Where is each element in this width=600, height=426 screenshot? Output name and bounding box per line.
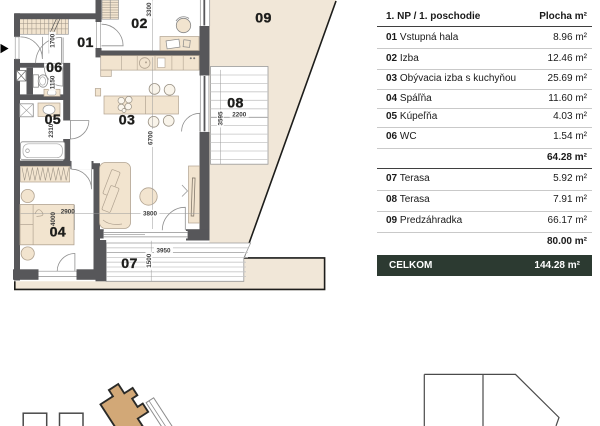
svg-text:3300: 3300 — [146, 2, 153, 17]
svg-text:04: 04 — [50, 224, 66, 240]
svg-text:6700: 6700 — [148, 131, 155, 146]
svg-text:3950: 3950 — [156, 247, 171, 254]
svg-text:3595: 3595 — [218, 111, 225, 126]
svg-text:1700: 1700 — [50, 33, 57, 48]
svg-text:09: 09 — [255, 10, 271, 26]
svg-text:01: 01 — [77, 35, 93, 51]
svg-text:05: 05 — [45, 112, 61, 128]
svg-text:03: 03 — [119, 112, 135, 128]
svg-text:02: 02 — [131, 16, 147, 32]
svg-text:1500: 1500 — [146, 253, 153, 268]
svg-text:08: 08 — [227, 95, 243, 111]
svg-text:2900: 2900 — [61, 209, 76, 216]
svg-text:06: 06 — [46, 60, 62, 76]
svg-text:3800: 3800 — [143, 211, 158, 218]
svg-text:07: 07 — [121, 256, 137, 272]
svg-text:2200: 2200 — [232, 112, 247, 119]
svg-text:1150: 1150 — [50, 75, 57, 89]
